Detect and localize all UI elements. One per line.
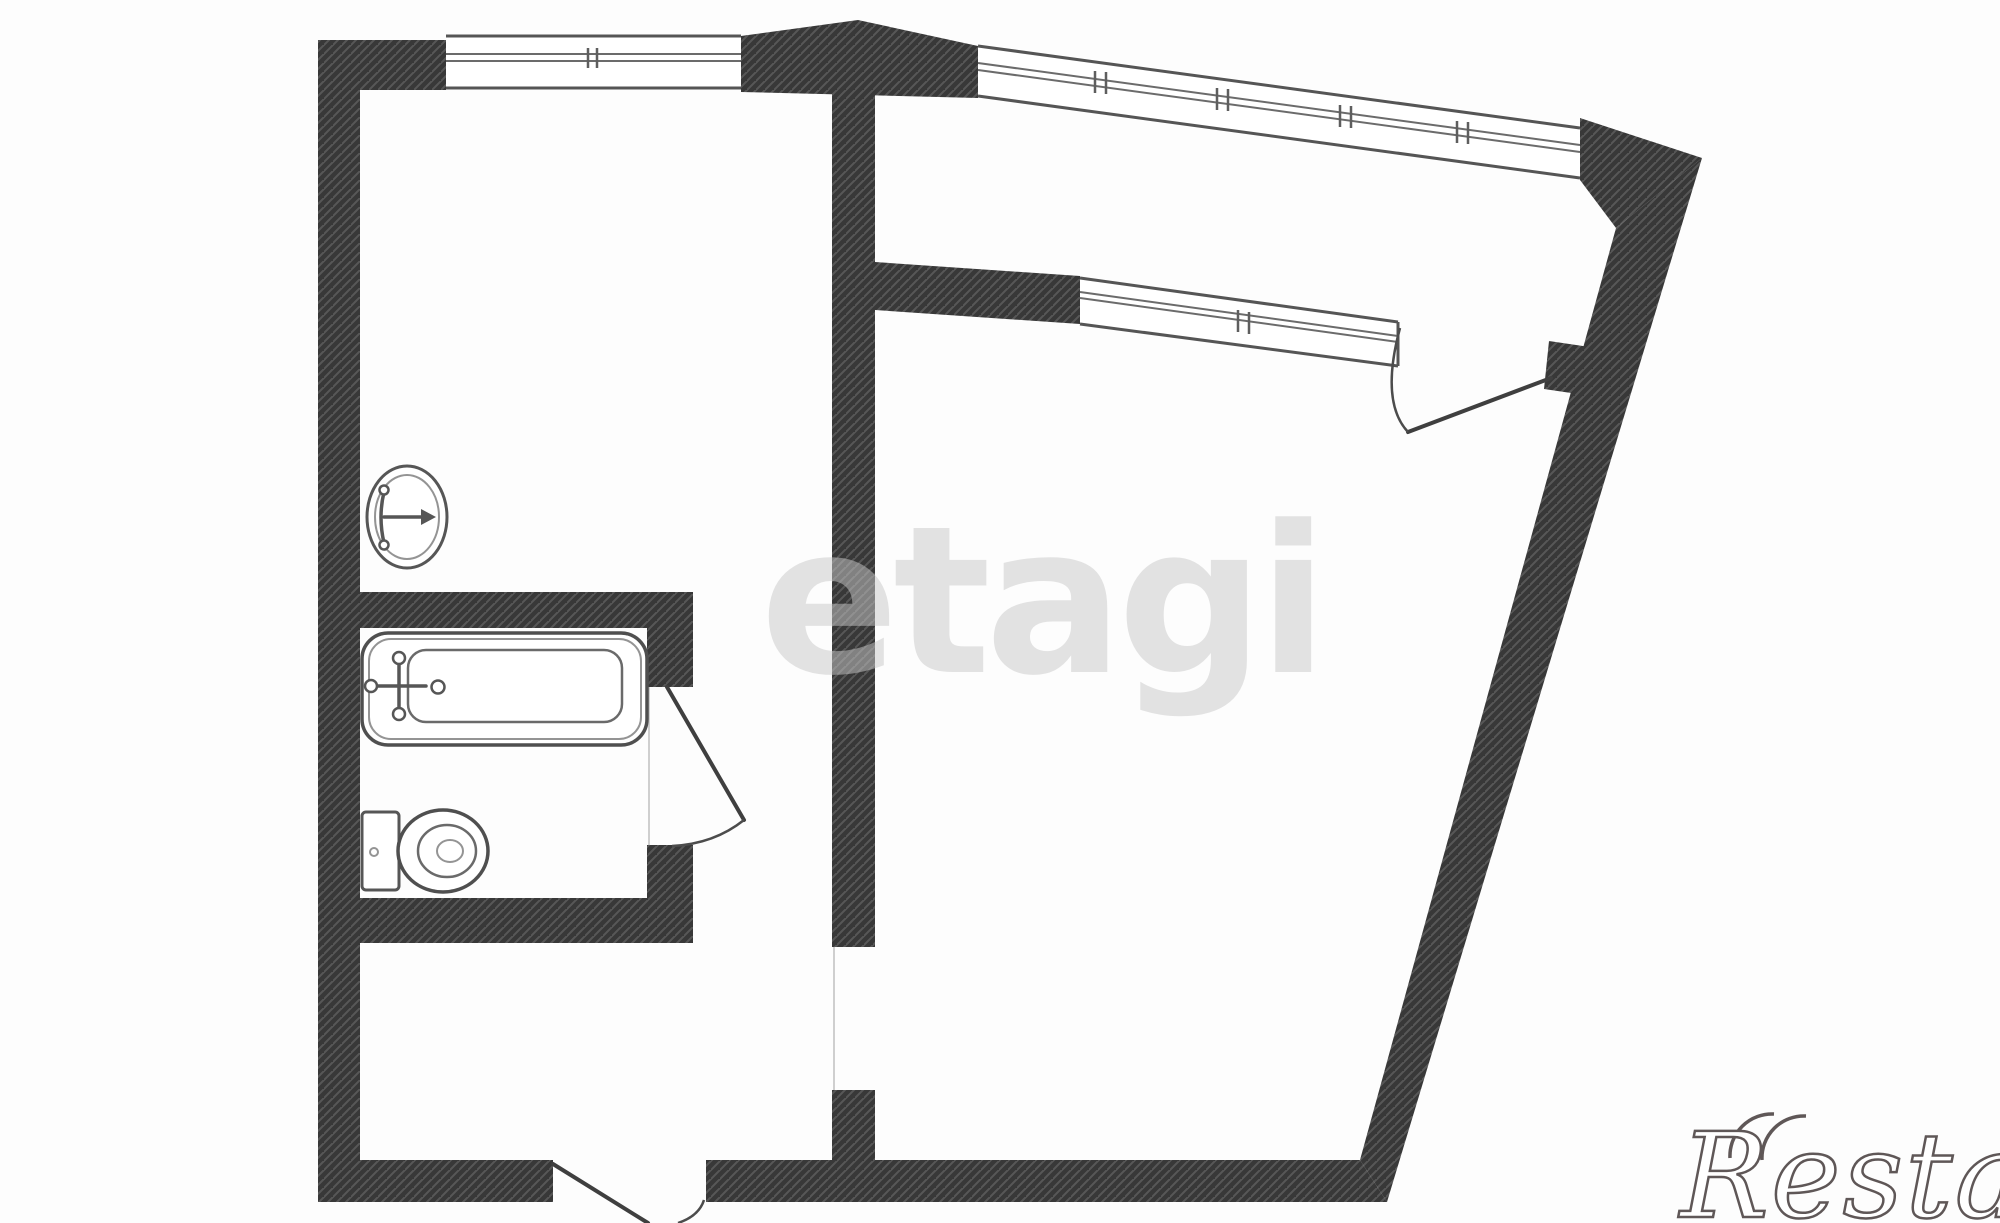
floor-plan-canvas: etagi Restate [0,0,2000,1223]
middle-wall-lower [832,1090,875,1162]
bathtub-drain-icon [432,681,445,694]
watermark-restate-logo: Restate [1678,1107,2000,1223]
bathtub-faucet-knob-top [393,652,405,664]
sink-tap-knob-top [380,486,389,495]
watermark-etagi: etagi [760,483,1322,721]
bathtub-faucet-knob-bottom [393,708,405,720]
toilet-bowl-outer [398,810,488,892]
floor-plan-svg: etagi Restate [0,0,2000,1223]
watermark-restate-text: Restate [1678,1107,2000,1223]
room-bathroom-divider-wall [318,592,687,628]
bathroom-bottom-wall [318,898,693,943]
top-left-wall [318,40,450,90]
toilet-tank [362,812,399,890]
sink-tap-knob-bottom [380,541,389,550]
left-room-window [446,34,741,90]
sink [367,466,447,568]
bathtub [362,633,647,745]
bathroom-right-wall-upper [647,592,693,687]
bathtub-faucet-knob-left [365,680,377,692]
toilet [362,810,488,892]
balcony-door-stub-wall [1544,341,1610,398]
bottom-wall-right [706,1160,1387,1202]
bottom-wall-left [318,1160,553,1202]
